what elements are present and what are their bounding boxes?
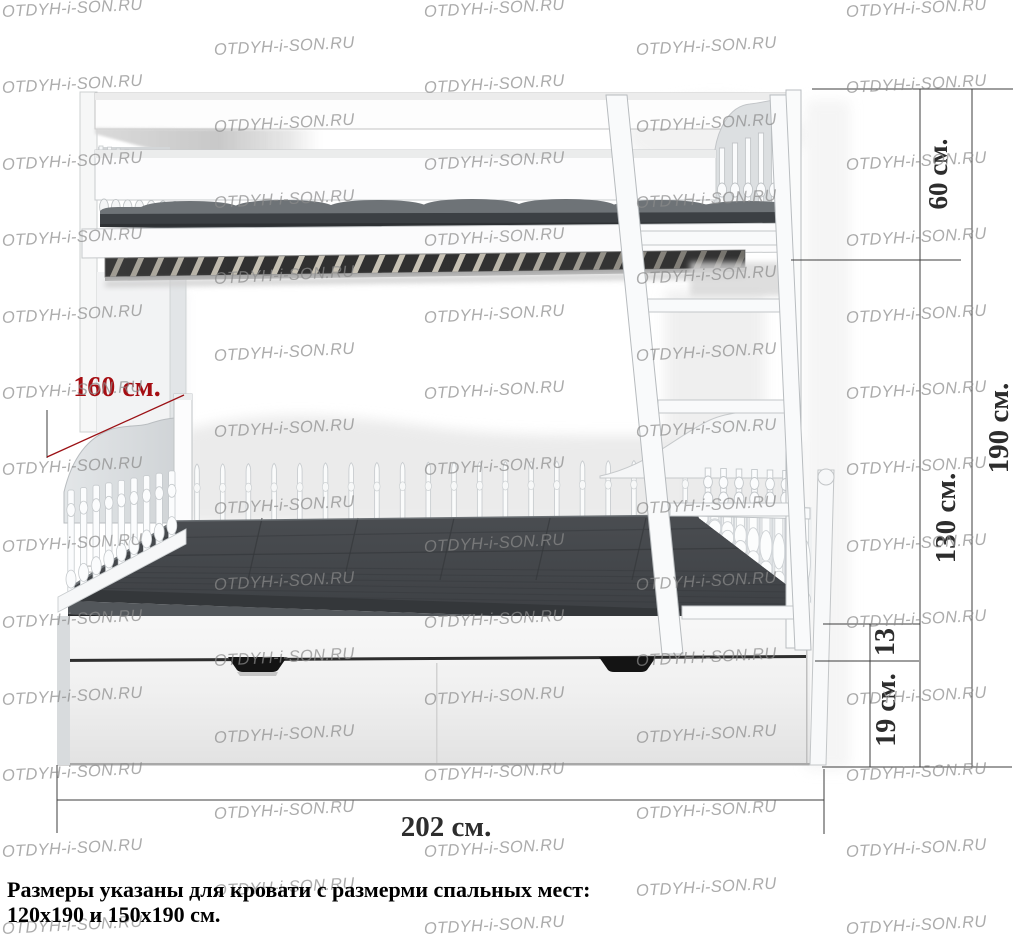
svg-text:19 см.: 19 см. <box>871 673 902 747</box>
svg-text:190 см.: 190 см. <box>983 383 1015 474</box>
svg-text:13: 13 <box>870 628 901 656</box>
svg-text:60 см.: 60 см. <box>923 139 953 210</box>
svg-text:202 см.: 202 см. <box>401 811 492 843</box>
